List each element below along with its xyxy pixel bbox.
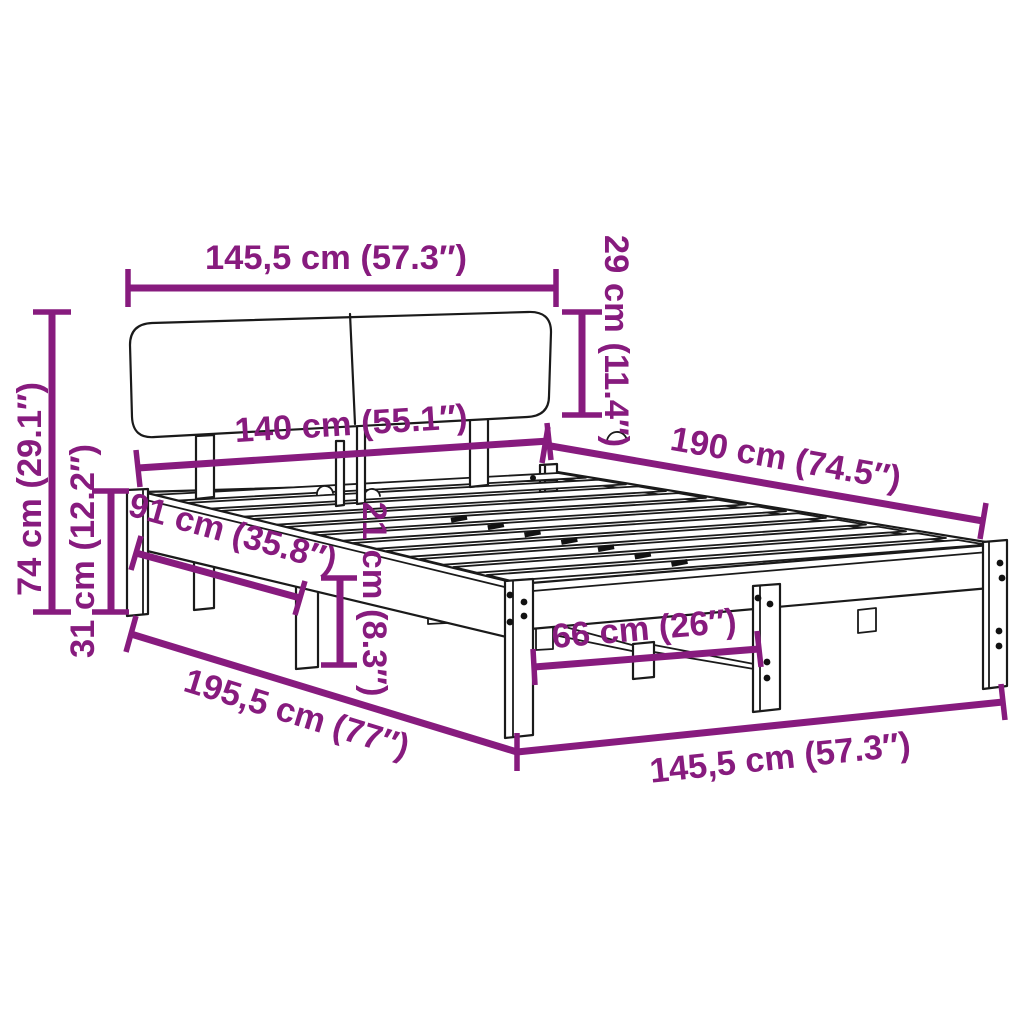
headboard-post: [336, 441, 344, 506]
foot-back-leg: [983, 540, 1007, 689]
bolt-head: [317, 486, 333, 495]
screw-hole: [521, 613, 528, 620]
screw-hole: [999, 575, 1006, 582]
screw-hole: [767, 601, 774, 608]
dim-frame-thickness-label: 21 cm (8.3″): [355, 502, 393, 697]
dim-headboard-height-label: 29 cm (11.4″): [597, 235, 635, 447]
dim-total-height-label: 74 cm (29.1″): [11, 382, 49, 596]
screw-hole: [507, 592, 514, 599]
screw-hole: [996, 628, 1003, 635]
dim-headboard-width-label: 145,5 cm (57.3″): [205, 239, 467, 277]
dim-base-height-label: 31 cm (12.2″): [64, 444, 102, 658]
headboard-post: [470, 417, 488, 487]
dim-total-length: 195,5 cm (77″): [126, 616, 517, 771]
foot-front-leg: [505, 579, 533, 738]
dim-total-height: 74 cm (29.1″): [11, 312, 71, 612]
bed-dimension-diagram: 145,5 cm (57.3″) 29 cm (11.4″) 140 cm (5…: [0, 0, 1024, 1024]
diagram-canvas: 145,5 cm (57.3″) 29 cm (11.4″) 140 cm (5…: [0, 0, 1024, 1024]
screw-hole: [755, 595, 762, 602]
screw-hole: [997, 560, 1004, 567]
dim-headboard-width: 145,5 cm (57.3″): [128, 239, 556, 307]
screw-hole: [996, 643, 1003, 650]
screw-hole: [764, 659, 771, 666]
screw-hole: [507, 619, 514, 626]
dim-base-height: 31 cm (12.2″): [64, 444, 129, 658]
screw-hole: [521, 599, 528, 606]
support-block: [858, 608, 876, 633]
screw-hole: [764, 675, 771, 682]
dim-headboard-height: 29 cm (11.4″): [562, 235, 635, 447]
screw-hole: [530, 475, 536, 481]
